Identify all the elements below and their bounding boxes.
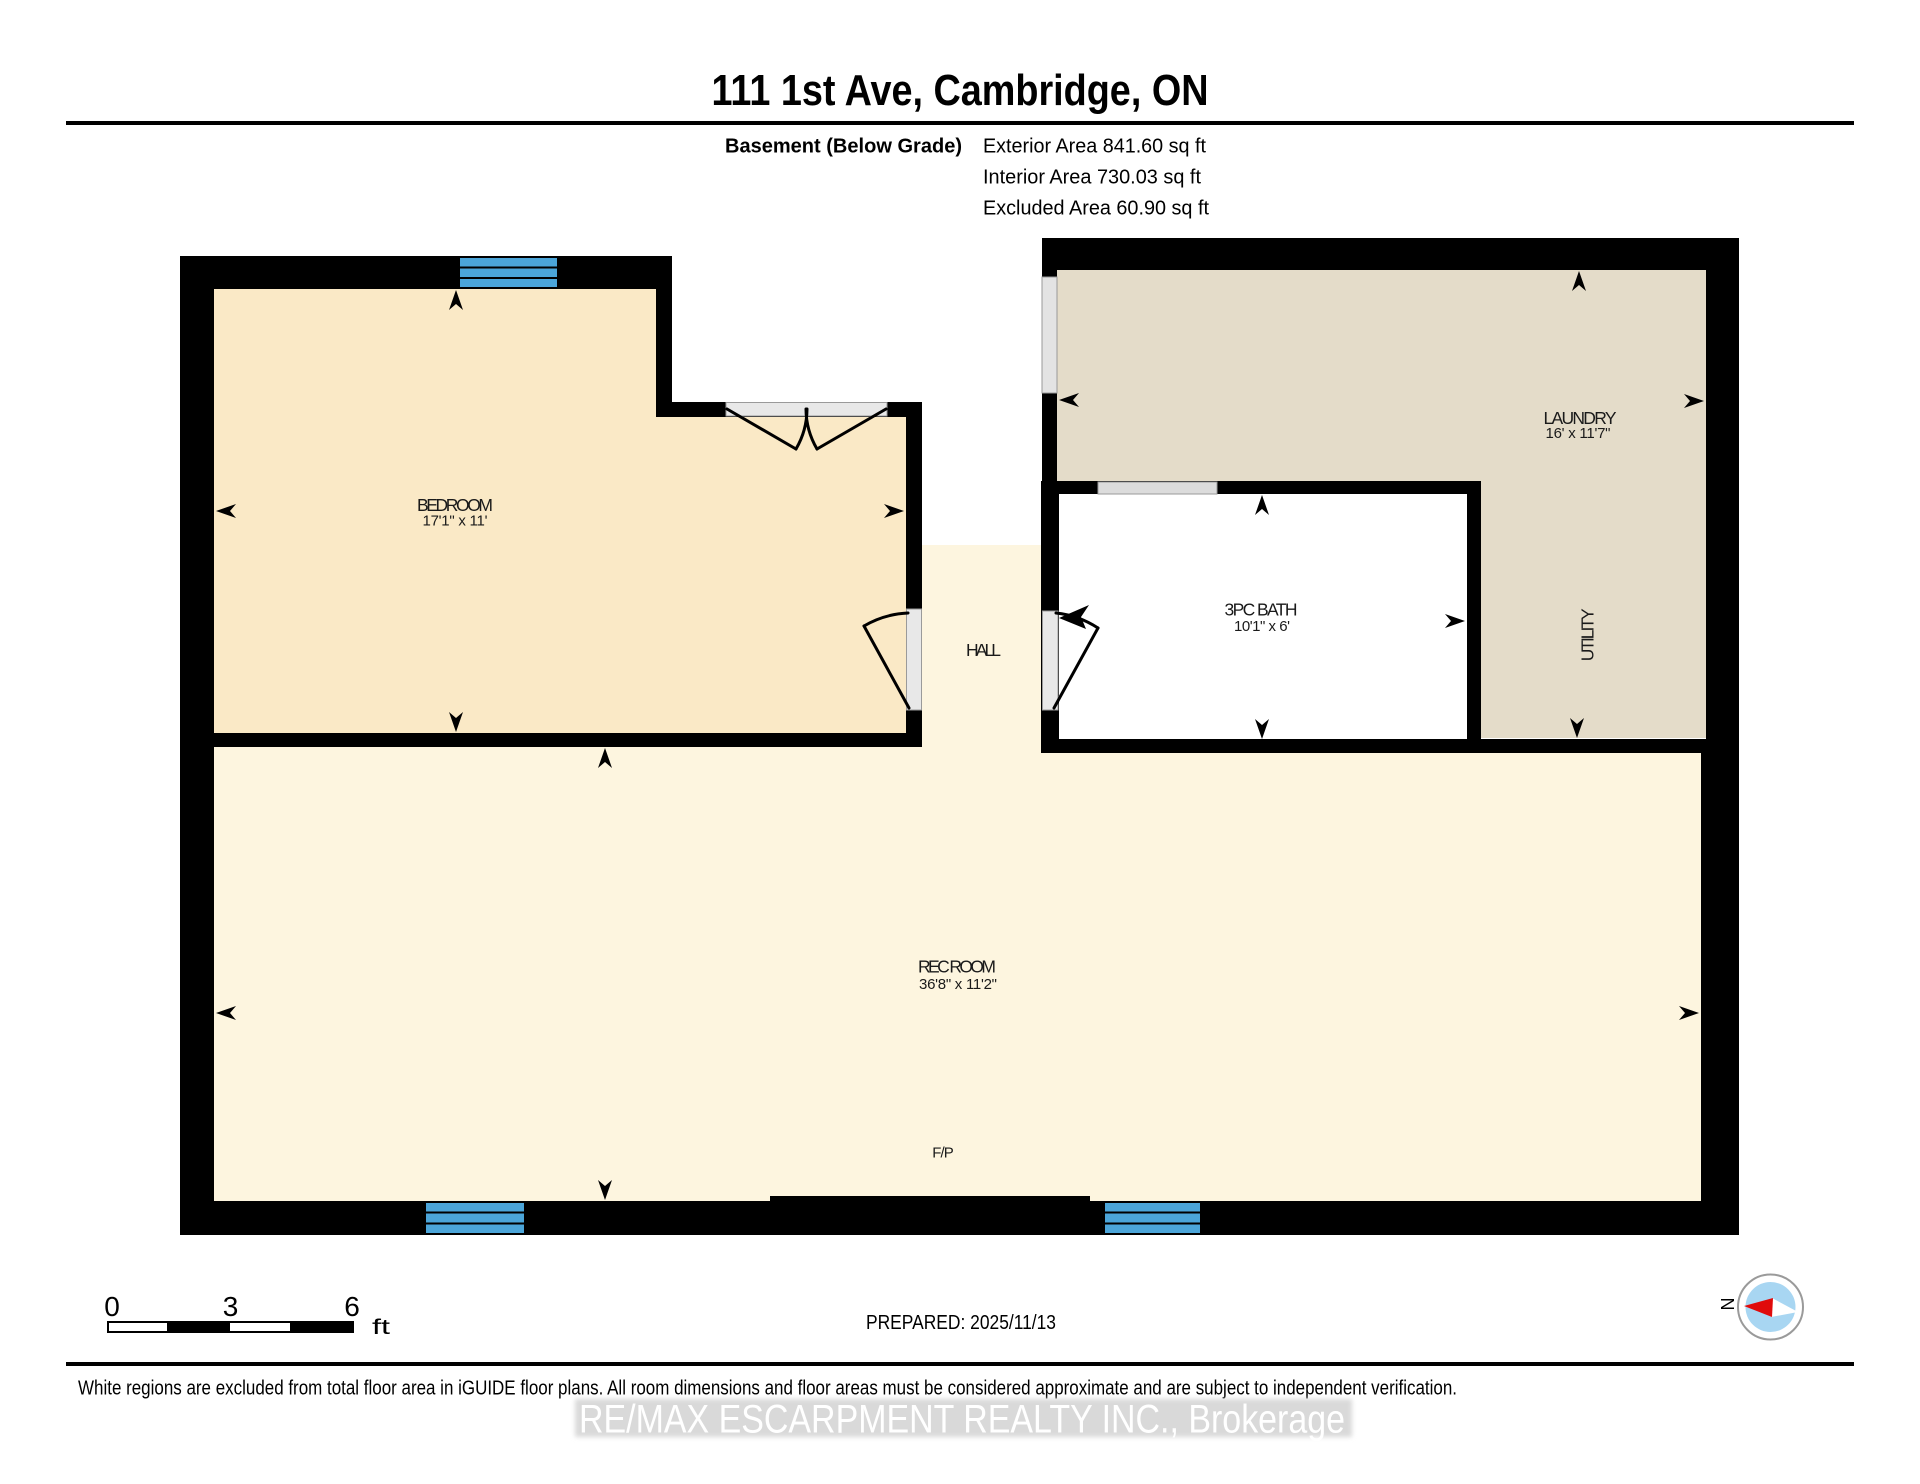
svg-text:17'1" x 11': 17'1" x 11' bbox=[423, 513, 488, 530]
svg-text:16' x 11'7": 16' x 11'7" bbox=[1546, 425, 1611, 442]
svg-text:Exterior Area 841.60 sq ft: Exterior Area 841.60 sq ft bbox=[983, 136, 1206, 158]
svg-text:PREPARED: 2025/11/13: PREPARED: 2025/11/13 bbox=[866, 1312, 1056, 1334]
svg-text:3PC BATH: 3PC BATH bbox=[1225, 600, 1298, 620]
svg-text:111 1st Ave, Cambridge, ON: 111 1st Ave, Cambridge, ON bbox=[712, 66, 1209, 115]
svg-text:HALL: HALL bbox=[966, 640, 1001, 660]
svg-text:UTILITY: UTILITY bbox=[1578, 608, 1598, 661]
svg-text:White regions are excluded fro: White regions are excluded from total fl… bbox=[78, 1377, 1457, 1400]
svg-text:10'1" x 6': 10'1" x 6' bbox=[1234, 618, 1290, 635]
svg-text:0: 0 bbox=[104, 1291, 120, 1322]
svg-text:3: 3 bbox=[223, 1291, 239, 1322]
svg-text:REC ROOM: REC ROOM bbox=[918, 957, 996, 977]
svg-text:F/P: F/P bbox=[932, 1145, 954, 1162]
svg-text:36'8" x 11'2": 36'8" x 11'2" bbox=[919, 976, 997, 993]
svg-text:Interior Area 730.03 sq ft: Interior Area 730.03 sq ft bbox=[983, 167, 1201, 189]
svg-text:Excluded Area 60.90 sq ft: Excluded Area 60.90 sq ft bbox=[983, 198, 1209, 220]
svg-text:N: N bbox=[1718, 1298, 1738, 1311]
svg-text:RE/MAX ESCARPMENT REALTY INC.,: RE/MAX ESCARPMENT REALTY INC., Brokerage bbox=[579, 1398, 1345, 1442]
svg-text:6: 6 bbox=[344, 1291, 360, 1322]
svg-text:Basement (Below Grade): Basement (Below Grade) bbox=[725, 136, 962, 158]
svg-text:ft: ft bbox=[372, 1316, 390, 1339]
